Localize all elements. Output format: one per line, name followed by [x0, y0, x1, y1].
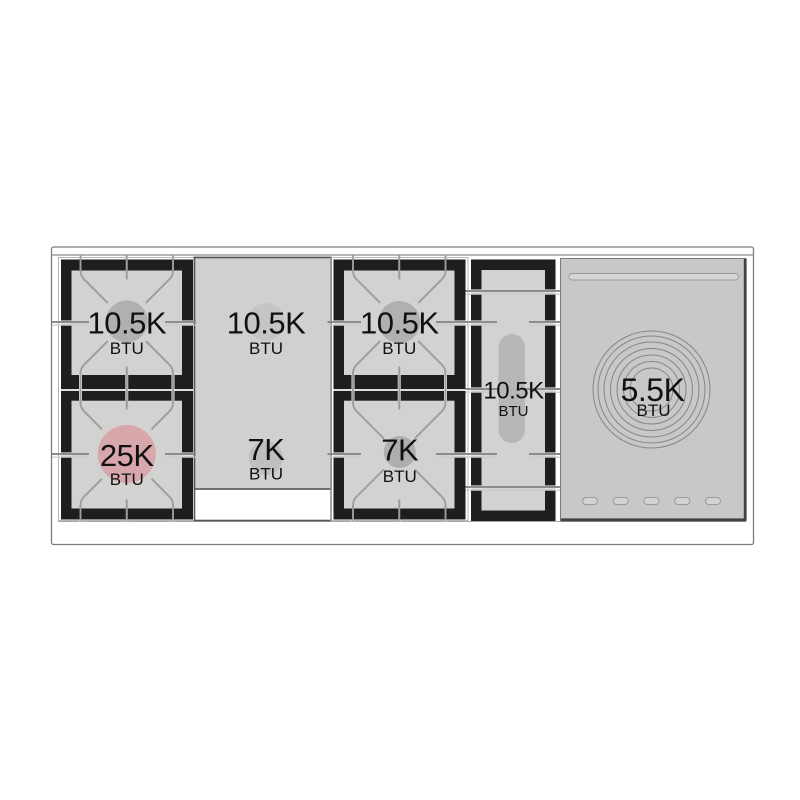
svg-text:BTU: BTU	[499, 403, 529, 420]
svg-text:BTU: BTU	[249, 465, 283, 484]
svg-text:10.5K: 10.5K	[87, 305, 166, 340]
svg-text:BTU: BTU	[249, 339, 283, 358]
svg-text:25K: 25K	[100, 438, 154, 473]
svg-text:7K: 7K	[381, 432, 419, 467]
svg-text:BTU: BTU	[637, 401, 671, 420]
svg-text:10.5K: 10.5K	[227, 305, 306, 340]
svg-text:10.5K: 10.5K	[360, 305, 439, 340]
svg-text:10.5K: 10.5K	[483, 377, 544, 404]
svg-text:7K: 7K	[248, 432, 286, 467]
svg-text:BTU: BTU	[110, 339, 144, 358]
svg-text:BTU: BTU	[110, 470, 144, 489]
svg-text:BTU: BTU	[382, 339, 416, 358]
svg-text:BTU: BTU	[383, 467, 417, 486]
